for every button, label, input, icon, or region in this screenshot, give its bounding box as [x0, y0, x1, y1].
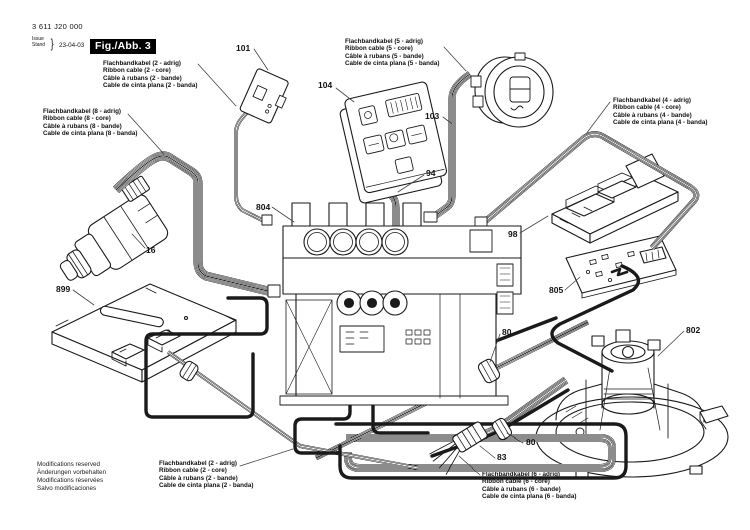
part-ref-104: 104: [318, 80, 332, 90]
label-line: Câble à rubans (8 - bande): [43, 123, 137, 130]
label-line: Ribbon cable (4 - core): [613, 104, 707, 111]
label-line: Cable de cinta plana (2 - banda): [159, 482, 253, 489]
diagram-page: 3 611 J20 000 Issue Stand } 23-04-03 Fig…: [0, 0, 750, 530]
label-ribbon-2core-bottom: Flachbandkabel (2 - adrig) Ribbon cable …: [159, 460, 253, 489]
label-line: Câble à rubans (6 - bande): [482, 486, 576, 493]
modifications-notice: Modifications reserved Änderungen vorbeh…: [37, 461, 106, 493]
part-ref-804: 804: [256, 202, 270, 212]
part-ref-80-upper: 80: [502, 327, 511, 337]
part-104-control-panel: [337, 81, 449, 204]
notice-line: Modifications réservées: [37, 477, 106, 485]
label-line: Flachbandkabel (5 - adrig): [345, 38, 439, 45]
label-line: Câble à rubans (2 - bande): [103, 75, 197, 82]
document-part-number: 3 611 J20 000: [32, 22, 83, 31]
notice-line: Änderungen vorbehalten: [37, 469, 106, 477]
label-line: Ribbon cable (5 - core): [345, 45, 439, 52]
part-ref-101: 101: [236, 43, 250, 53]
label-line: Ribbon cable (6 - core): [482, 478, 576, 485]
label-line: Ribbon cable (2 - core): [103, 67, 197, 74]
issue-stand-brace: }: [51, 36, 54, 51]
label-ribbon-8core: Flachbandkabel (8 - adrig) Ribbon cable …: [43, 108, 137, 137]
label-line: Ribbon cable (8 - core): [43, 115, 137, 122]
label-line: Flachbandkabel (2 - adrig): [159, 460, 253, 467]
part-ref-98: 98: [508, 229, 517, 239]
figure-label: Fig./Abb. 3: [90, 39, 156, 54]
label-ribbon-5core: Flachbandkabel (5 - adrig) Ribbon cable …: [345, 38, 439, 67]
part-ref-802: 802: [686, 325, 700, 335]
label-ribbon-2core-top: Flachbandkabel (2 - adrig) Ribbon cable …: [103, 60, 197, 89]
notice-line: Modifications reserved: [37, 461, 106, 469]
label-line: Cable de cinta plana (8 - banda): [43, 130, 137, 137]
label-line: Cable de cinta plana (2 - banda): [103, 82, 197, 89]
part-ref-83: 83: [497, 452, 506, 462]
label-line: Cable de cinta plana (5 - banda): [345, 60, 439, 67]
part-rotary-encoder: [471, 53, 553, 127]
label-line: Câble à rubans (5 - bande): [345, 53, 439, 60]
issue-stand-label: Issue Stand: [32, 37, 45, 48]
label-line: Cable de cinta plana (4 - banda): [613, 119, 707, 126]
label-line: Flachbandkabel (6 - adrig): [482, 471, 576, 478]
part-ref-94: 94: [426, 168, 435, 178]
label-line: Flachbandkabel (8 - adrig): [43, 108, 137, 115]
label-line: Cable de cinta plana (6 - banda): [482, 493, 576, 500]
label-ribbon-4core: Flachbandkabel (4 - adrig) Ribbon cable …: [613, 97, 707, 126]
part-ref-899: 899: [56, 284, 70, 294]
part-ref-16: 16: [146, 245, 155, 255]
part-802-motor-base: [536, 330, 728, 478]
stand-label: Stand: [32, 43, 45, 49]
part-ref-80-lower: 80: [526, 437, 535, 447]
label-line: Flachbandkabel (2 - adrig): [103, 60, 197, 67]
label-line: Câble à rubans (4 - bande): [613, 112, 707, 119]
label-line: Câble à rubans (2 - bande): [159, 475, 253, 482]
label-line: Flachbandkabel (4 - adrig): [613, 97, 707, 104]
label-line: Ribbon cable (2 - core): [159, 467, 253, 474]
notice-line: Salvo modificaciones: [37, 485, 106, 493]
part-16-valve-unit: [42, 176, 177, 296]
part-ref-805: 805: [549, 285, 563, 295]
part-101-pcb: [239, 68, 292, 125]
label-ribbon-6core: Flachbandkabel (6 - adrig) Ribbon cable …: [482, 471, 576, 500]
issue-date: 23-04-03: [59, 42, 84, 49]
part-ref-103: 103: [425, 111, 439, 121]
